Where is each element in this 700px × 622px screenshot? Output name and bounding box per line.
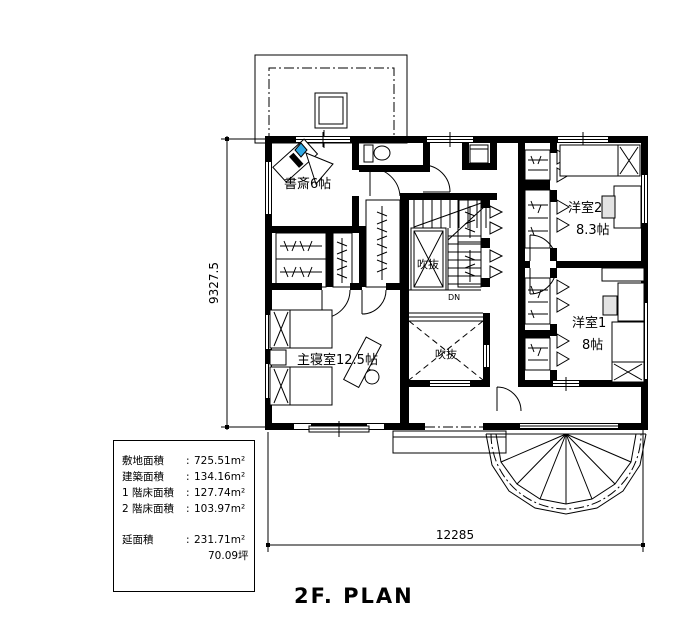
table-row: 敷地面積:725.51m² [122,453,254,469]
room-label-western2: 洋室2 [568,200,602,216]
room-label-study: 書斎6帖 [284,176,331,192]
table-row: 延面積:231.71m² [122,532,254,548]
dimension-left: 9327.5 [207,136,265,430]
void-label-lower: 吹抜 [435,347,457,361]
bed-icon [270,367,332,405]
door-arc [497,387,521,411]
bed-icon [270,310,332,348]
floor-plan-drawing: 9327.5 12285 書斎6帖 洋室2 8.3帖 洋室1 8帖 主寝室12.… [0,0,700,622]
chair-icon [602,196,615,218]
nightstand-icon [270,350,286,365]
floor-plan-page: 9327.5 12285 書斎6帖 洋室2 8.3帖 洋室1 8帖 主寝室12.… [0,0,700,622]
desk-icon [618,283,644,321]
western-room-doors [530,235,556,294]
western1-closet [525,278,569,370]
bed-icon [560,145,640,176]
folding-door-icon [490,206,502,218]
void-label-upper: 吹抜 [417,257,439,271]
stairs-down-label: DN [448,293,460,302]
staircase [409,200,486,290]
chair-icon [365,370,379,384]
dimension-height-label: 9327.5 [207,262,221,304]
desk-icon [614,186,641,228]
bed-icon [612,322,644,382]
roof-outline [255,55,407,148]
room-label-western1: 洋室1 [572,315,606,331]
table-row: 2 階床面積:103.97m² [122,501,254,517]
area-table: 敷地面積:725.51m² 建築面積:134.16m² 1 階床面積:127.7… [113,440,255,592]
skylight [315,93,347,128]
room-label-master-bedroom: 主寝室12.5帖 [297,352,378,368]
chair-icon [603,296,617,315]
dimension-width-label: 12285 [436,528,474,542]
plan-title: 2F. PLAN [294,584,414,608]
room-size-western2: 8.3帖 [576,223,610,238]
table-row: 建築面積:134.16m² [122,469,254,485]
door-arc [370,168,400,196]
room-size-western1: 8帖 [582,338,603,353]
hall-bench-icon [470,145,488,163]
shelf-icon [602,268,644,281]
curved-balcony [393,431,646,514]
table-row: 70.09坪 [122,548,254,564]
table-row: 1 階床面積:127.74m² [122,485,254,501]
dimension-bottom: 12285 [266,430,645,552]
lower-void [409,313,483,380]
western1-furniture [602,268,644,382]
